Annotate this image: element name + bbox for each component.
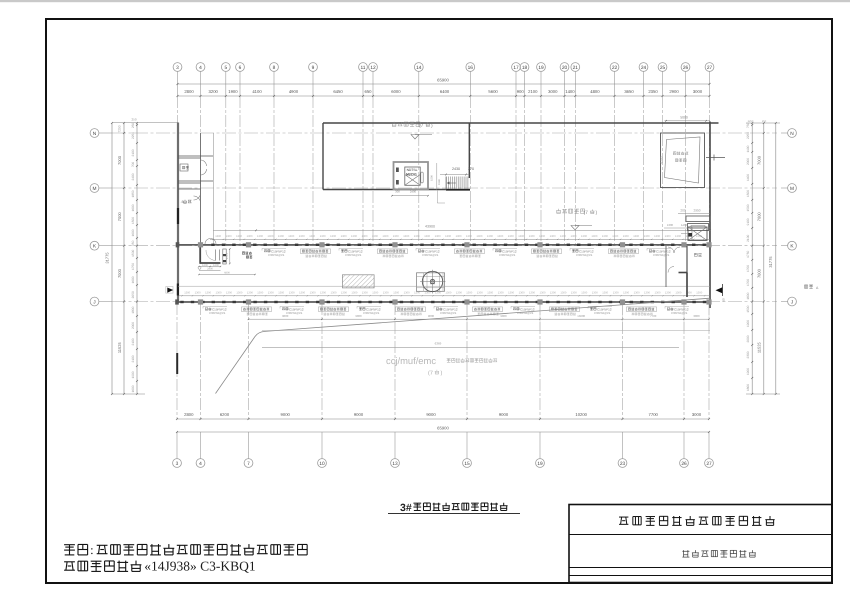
svg-text:2400: 2400 (410, 190, 417, 194)
svg-text:1300: 1300 (498, 292, 504, 295)
svg-text:9000: 9000 (281, 412, 291, 417)
svg-text:1300: 1300 (205, 292, 211, 295)
svg-text:1300: 1300 (466, 235, 472, 238)
svg-text:1400: 1400 (746, 174, 750, 181)
svg-text:1300: 1300 (623, 235, 629, 238)
svg-text:C30P04@P4: C30P04@P4 (671, 311, 688, 315)
svg-text:(7: (7 (419, 123, 424, 129)
svg-text:1300: 1300 (602, 292, 608, 295)
svg-text:1500: 1500 (131, 217, 135, 224)
svg-text:4100: 4100 (252, 89, 262, 94)
svg-text:1300: 1300 (351, 292, 357, 295)
svg-text:C30P04@P4: C30P04@P4 (422, 253, 439, 257)
svg-text:1300: 1300 (236, 292, 242, 295)
svg-text:1750: 1750 (131, 263, 135, 270)
svg-text:2350: 2350 (648, 89, 658, 94)
svg-text:50: 50 (722, 298, 726, 302)
svg-text:1300: 1300 (247, 235, 253, 238)
svg-text:26: 26 (683, 65, 689, 71)
svg-text:1300: 1300 (382, 235, 388, 238)
svg-text:2400: 2400 (207, 268, 213, 271)
svg-text:1300: 1300 (320, 292, 326, 295)
svg-text:1540: 1540 (438, 179, 441, 185)
svg-text:27: 27 (706, 461, 712, 467)
svg-text:4: 4 (199, 65, 202, 71)
svg-text:1300: 1300 (278, 292, 284, 295)
svg-text:15: 15 (464, 461, 470, 467)
svg-text:2300: 2300 (746, 351, 750, 358)
svg-text:7700: 7700 (649, 412, 659, 417)
svg-text:1500: 1500 (746, 190, 750, 197)
svg-text:270: 270 (468, 167, 474, 171)
svg-text:C30P04@P4: C30P04@P4 (209, 311, 226, 315)
svg-text:3: 3 (176, 65, 179, 71)
svg-text:C30P04@P4: C30P04@P4 (653, 253, 670, 257)
svg-text:1300: 1300 (623, 292, 629, 295)
svg-text:7700: 7700 (650, 314, 657, 318)
svg-text:1300: 1300 (487, 235, 493, 238)
svg-text:21: 21 (573, 65, 579, 71)
svg-text:2800: 2800 (184, 412, 194, 417)
svg-text:1300: 1300 (383, 292, 389, 295)
svg-text:1300: 1300 (497, 235, 503, 238)
svg-text:31775: 31775 (768, 256, 773, 268)
svg-text:1300: 1300 (665, 235, 671, 238)
svg-text:1300: 1300 (372, 292, 378, 295)
svg-text:9: 9 (312, 65, 315, 71)
svg-text:1300: 1300 (654, 235, 660, 238)
svg-text:1300: 1300 (403, 235, 409, 238)
svg-text:2100: 2100 (131, 355, 135, 362)
svg-text:7250: 7250 (117, 125, 121, 132)
svg-text:2250: 2250 (748, 120, 754, 123)
svg-text:5600: 5600 (488, 89, 498, 94)
svg-text:7000: 7000 (756, 212, 761, 222)
svg-text:1300: 1300 (560, 235, 566, 238)
svg-text:5: 5 (224, 65, 227, 71)
svg-text:31775: 31775 (105, 252, 110, 264)
svg-text:7000: 7000 (117, 268, 122, 278)
svg-text:1300: 1300 (330, 235, 336, 238)
svg-text:7000: 7000 (756, 268, 761, 278)
svg-text:1300: 1300 (278, 235, 284, 238)
svg-text:C30P04@P4: C30P04@P4 (345, 253, 362, 257)
svg-text:9000: 9000 (282, 314, 289, 318)
svg-text:1300: 1300 (236, 235, 242, 238)
svg-text:10200: 10200 (575, 412, 587, 417)
svg-text:13: 13 (392, 461, 398, 467)
svg-text:750: 750 (746, 123, 750, 129)
svg-text:24: 24 (641, 65, 647, 71)
svg-text:43900: 43900 (425, 225, 435, 229)
svg-text:C30P04@P4: C30P04@P4 (576, 253, 593, 257)
svg-text:1300: 1300 (331, 292, 337, 295)
svg-text:1600: 1600 (746, 292, 750, 299)
svg-text:10: 10 (319, 461, 325, 467)
svg-text:4900: 4900 (289, 89, 299, 94)
svg-text:650: 650 (365, 89, 373, 94)
svg-text:1300: 1300 (634, 292, 640, 295)
svg-text:3000: 3000 (548, 89, 558, 94)
svg-text:N: N (790, 131, 794, 137)
svg-text:1300: 1300 (476, 235, 482, 238)
svg-text:1300: 1300 (508, 292, 514, 295)
svg-text:2100: 2100 (528, 89, 538, 94)
svg-text:1300: 1300 (539, 235, 545, 238)
svg-text:1500: 1500 (746, 204, 750, 211)
svg-text:9100: 9100 (746, 218, 750, 225)
svg-text:(7: (7 (428, 371, 433, 377)
svg-text:1300: 1300 (289, 292, 295, 295)
svg-text:1300: 1300 (215, 235, 221, 238)
svg-text:3: 3 (176, 461, 179, 467)
svg-text:11: 11 (361, 65, 366, 71)
svg-text:M: M (790, 186, 794, 192)
svg-text:1300: 1300 (435, 292, 441, 295)
svg-text:1300: 1300 (644, 235, 650, 238)
svg-text:1900: 1900 (228, 89, 238, 94)
svg-text:1300: 1300 (581, 292, 587, 295)
svg-text:2250: 2250 (746, 132, 750, 139)
svg-text:1800: 1800 (746, 384, 750, 391)
svg-text:11525: 11525 (756, 342, 761, 354)
svg-text:1300: 1300 (633, 235, 639, 238)
svg-text:C30P04@P4: C30P04@P4 (286, 311, 303, 315)
svg-text:1300: 1300 (667, 223, 674, 227)
svg-text:23: 23 (620, 461, 626, 467)
svg-text:C30P04@P4: C30P04@P4 (594, 311, 611, 315)
svg-text:4: 4 (199, 461, 202, 467)
svg-text:1700: 1700 (746, 265, 750, 272)
svg-text:1600: 1600 (131, 229, 135, 236)
svg-text:1300: 1300 (299, 292, 305, 295)
svg-text:25: 25 (660, 65, 666, 71)
svg-text:1300: 1300 (414, 292, 420, 295)
svg-text:250: 250 (131, 118, 136, 122)
svg-text:20: 20 (562, 65, 568, 71)
svg-text:19: 19 (538, 65, 544, 71)
svg-text:900: 900 (517, 89, 525, 94)
svg-text:2100: 2100 (131, 149, 135, 156)
svg-text:1300: 1300 (288, 235, 294, 238)
svg-text:3200: 3200 (209, 89, 219, 94)
svg-text:1300: 1300 (560, 292, 566, 295)
svg-text:65900: 65900 (437, 426, 449, 431)
svg-text:6000: 6000 (391, 89, 401, 94)
svg-text:250: 250 (131, 123, 135, 129)
svg-text:1300: 1300 (267, 235, 273, 238)
svg-text:1300: 1300 (226, 292, 232, 295)
svg-text:1300: 1300 (404, 292, 410, 295)
svg-text:300: 300 (395, 190, 400, 194)
svg-text:1800: 1800 (131, 306, 135, 313)
svg-text:1300: 1300 (602, 235, 608, 238)
svg-text:3000: 3000 (693, 89, 703, 94)
svg-text:1300: 1300 (341, 292, 347, 295)
svg-text:7: 7 (247, 461, 250, 467)
svg-text:2050: 2050 (131, 291, 135, 298)
svg-text:7000: 7000 (117, 155, 122, 165)
svg-text:9000: 9000 (500, 314, 507, 318)
svg-text:7000: 7000 (117, 212, 122, 222)
svg-text:C30P04@P4: C30P04@P4 (499, 253, 516, 257)
svg-text:N: N (93, 131, 97, 137)
svg-text:1300: 1300 (445, 292, 451, 295)
svg-text:1700: 1700 (746, 279, 750, 286)
svg-text:1300: 1300 (655, 292, 661, 295)
svg-text:2800: 2800 (184, 89, 194, 94)
svg-text:1300: 1300 (351, 235, 357, 238)
svg-text:1300: 1300 (268, 292, 274, 295)
svg-text:1300: 1300 (216, 292, 222, 295)
svg-text:17: 17 (513, 65, 519, 71)
svg-text:1300: 1300 (414, 235, 420, 238)
svg-text:27: 27 (707, 65, 713, 71)
svg-text:12: 12 (370, 65, 376, 71)
svg-text:1300: 1300 (184, 292, 190, 295)
svg-text:1300: 1300 (393, 235, 399, 238)
svg-text:9000: 9000 (355, 314, 362, 318)
svg-text:1300: 1300 (571, 292, 577, 295)
svg-text:6400: 6400 (440, 89, 450, 94)
svg-text:1300: 1300 (362, 235, 368, 238)
svg-text:1300: 1300 (665, 292, 671, 295)
svg-text:1300: 1300 (425, 292, 431, 295)
svg-text:M: M (93, 186, 97, 192)
svg-text:«14J938» C3-KBQ1: «14J938» C3-KBQ1 (144, 559, 255, 574)
svg-text:1300: 1300 (299, 235, 305, 238)
svg-text:1300: 1300 (675, 292, 681, 295)
svg-text:1300: 1300 (696, 292, 702, 295)
svg-text:ccj/muf/emc: ccj/muf/emc (386, 355, 436, 366)
svg-text:1300: 1300 (320, 235, 326, 238)
svg-text:3#: 3# (400, 502, 412, 514)
svg-text:1850: 1850 (131, 190, 135, 197)
svg-text:1900: 1900 (746, 320, 750, 327)
svg-text:6450: 6450 (333, 89, 343, 94)
svg-text:19: 19 (537, 461, 543, 467)
svg-text:1300: 1300 (508, 235, 514, 238)
svg-text:1460: 1460 (681, 223, 688, 227)
svg-text:1500: 1500 (431, 175, 434, 181)
svg-text:1775: 1775 (225, 252, 229, 259)
svg-text:1300: 1300 (372, 235, 378, 238)
svg-text:1300: 1300 (445, 235, 451, 238)
svg-text:1300: 1300 (550, 235, 556, 238)
svg-text:1600: 1600 (131, 276, 135, 283)
svg-text:1300: 1300 (195, 292, 201, 295)
svg-text:1300: 1300 (226, 235, 232, 238)
svg-text:1300: 1300 (592, 292, 598, 295)
svg-text:1300: 1300 (393, 292, 399, 295)
svg-text:1300: 1300 (612, 235, 618, 238)
svg-text:2000: 2000 (746, 158, 750, 165)
svg-text:1300: 1300 (456, 292, 462, 295)
svg-text:(7: (7 (584, 210, 589, 216)
svg-text:9000: 9000 (426, 412, 436, 417)
svg-text:2950: 2950 (693, 209, 700, 213)
svg-text:9000: 9000 (499, 412, 509, 417)
svg-text:6200: 6200 (220, 412, 230, 417)
svg-text:1300: 1300 (540, 292, 546, 295)
svg-text:3000: 3000 (692, 412, 702, 417)
svg-text:1300: 1300 (466, 292, 472, 295)
svg-text:1200: 1200 (213, 264, 219, 267)
svg-text:250: 250 (762, 120, 767, 123)
svg-text:1300: 1300 (456, 235, 462, 238)
svg-text:22: 22 (612, 65, 618, 71)
svg-text:C30P04@P4: C30P04@P4 (268, 253, 285, 257)
svg-text:200: 200 (680, 209, 686, 213)
svg-text:6700: 6700 (660, 156, 664, 163)
svg-text:1300: 1300 (435, 235, 441, 238)
svg-text:1300: 1300 (519, 292, 525, 295)
svg-text:1300: 1300 (247, 292, 253, 295)
svg-text:16: 16 (468, 65, 474, 71)
svg-text:700: 700 (131, 162, 135, 168)
svg-text:6800: 6800 (224, 272, 230, 275)
svg-text:1300: 1300 (529, 292, 535, 295)
svg-text:65900: 65900 (437, 78, 449, 83)
svg-text::: : (90, 543, 93, 557)
svg-text:2000: 2000 (746, 335, 750, 342)
svg-text:1300: 1300 (581, 235, 587, 238)
svg-text:1300: 1300 (518, 235, 524, 238)
svg-text:1300: 1300 (341, 235, 347, 238)
svg-text:950: 950 (131, 240, 135, 246)
svg-text:10200: 10200 (577, 314, 585, 318)
svg-text:5000: 5000 (680, 116, 688, 120)
svg-text:1500: 1500 (746, 305, 750, 312)
svg-text:1300: 1300 (571, 235, 577, 238)
svg-text:1900: 1900 (746, 368, 750, 375)
svg-text:1300: 1300 (529, 235, 535, 238)
svg-text:1200: 1200 (202, 264, 208, 267)
svg-text:7000: 7000 (756, 155, 761, 165)
svg-text:6369: 6369 (435, 342, 442, 346)
svg-text:1400: 1400 (565, 89, 575, 94)
svg-text:1300: 1300 (257, 235, 263, 238)
svg-text:2400: 2400 (131, 173, 135, 180)
svg-text:2250: 2250 (131, 132, 135, 139)
svg-text:4800: 4800 (590, 89, 600, 94)
svg-text:1300: 1300 (675, 235, 681, 238)
svg-text:14: 14 (416, 65, 422, 71)
svg-text:26: 26 (681, 461, 687, 467)
svg-text:1300: 1300 (613, 292, 619, 295)
svg-text:M2C01: M2C01 (406, 172, 417, 176)
svg-text:8: 8 (273, 65, 276, 71)
svg-text:1300: 1300 (310, 292, 316, 295)
svg-text:2430: 2430 (452, 167, 460, 171)
svg-text:3650: 3650 (624, 89, 634, 94)
svg-text:1300: 1300 (424, 235, 430, 238)
svg-text:-5: -5 (181, 200, 184, 204)
svg-text:9000: 9000 (354, 412, 364, 417)
svg-text:1500: 1500 (131, 250, 135, 257)
svg-text:1300: 1300 (591, 235, 597, 238)
svg-text:2900: 2900 (669, 89, 679, 94)
svg-text:1300: 1300 (477, 292, 483, 295)
svg-text:11525: 11525 (117, 342, 122, 354)
svg-text:6: 6 (239, 65, 242, 71)
svg-text:1300: 1300 (309, 235, 315, 238)
svg-text:1100: 1100 (746, 145, 750, 152)
svg-text:2100: 2100 (746, 235, 750, 242)
svg-text:1300: 1300 (257, 292, 263, 295)
svg-text:): ) (441, 371, 443, 377)
svg-text:1300: 1300 (487, 292, 493, 295)
svg-text:1750: 1750 (746, 251, 750, 258)
svg-text:2000: 2000 (131, 322, 135, 329)
svg-text:1600: 1600 (131, 204, 135, 211)
svg-text:1600: 1600 (131, 385, 135, 392)
svg-text:1300: 1300 (550, 292, 556, 295)
svg-text:1900: 1900 (131, 371, 135, 378)
svg-text:9000: 9000 (428, 314, 435, 318)
svg-text:2100: 2100 (131, 338, 135, 345)
svg-text:1300: 1300 (644, 292, 650, 295)
svg-text:3000: 3000 (693, 314, 700, 318)
svg-text:1300: 1300 (362, 292, 368, 295)
svg-text:C30P04@P4: C30P04@P4 (440, 311, 457, 315)
svg-text:C30P04@P4: C30P04@P4 (363, 311, 380, 315)
svg-text:18: 18 (522, 65, 528, 71)
